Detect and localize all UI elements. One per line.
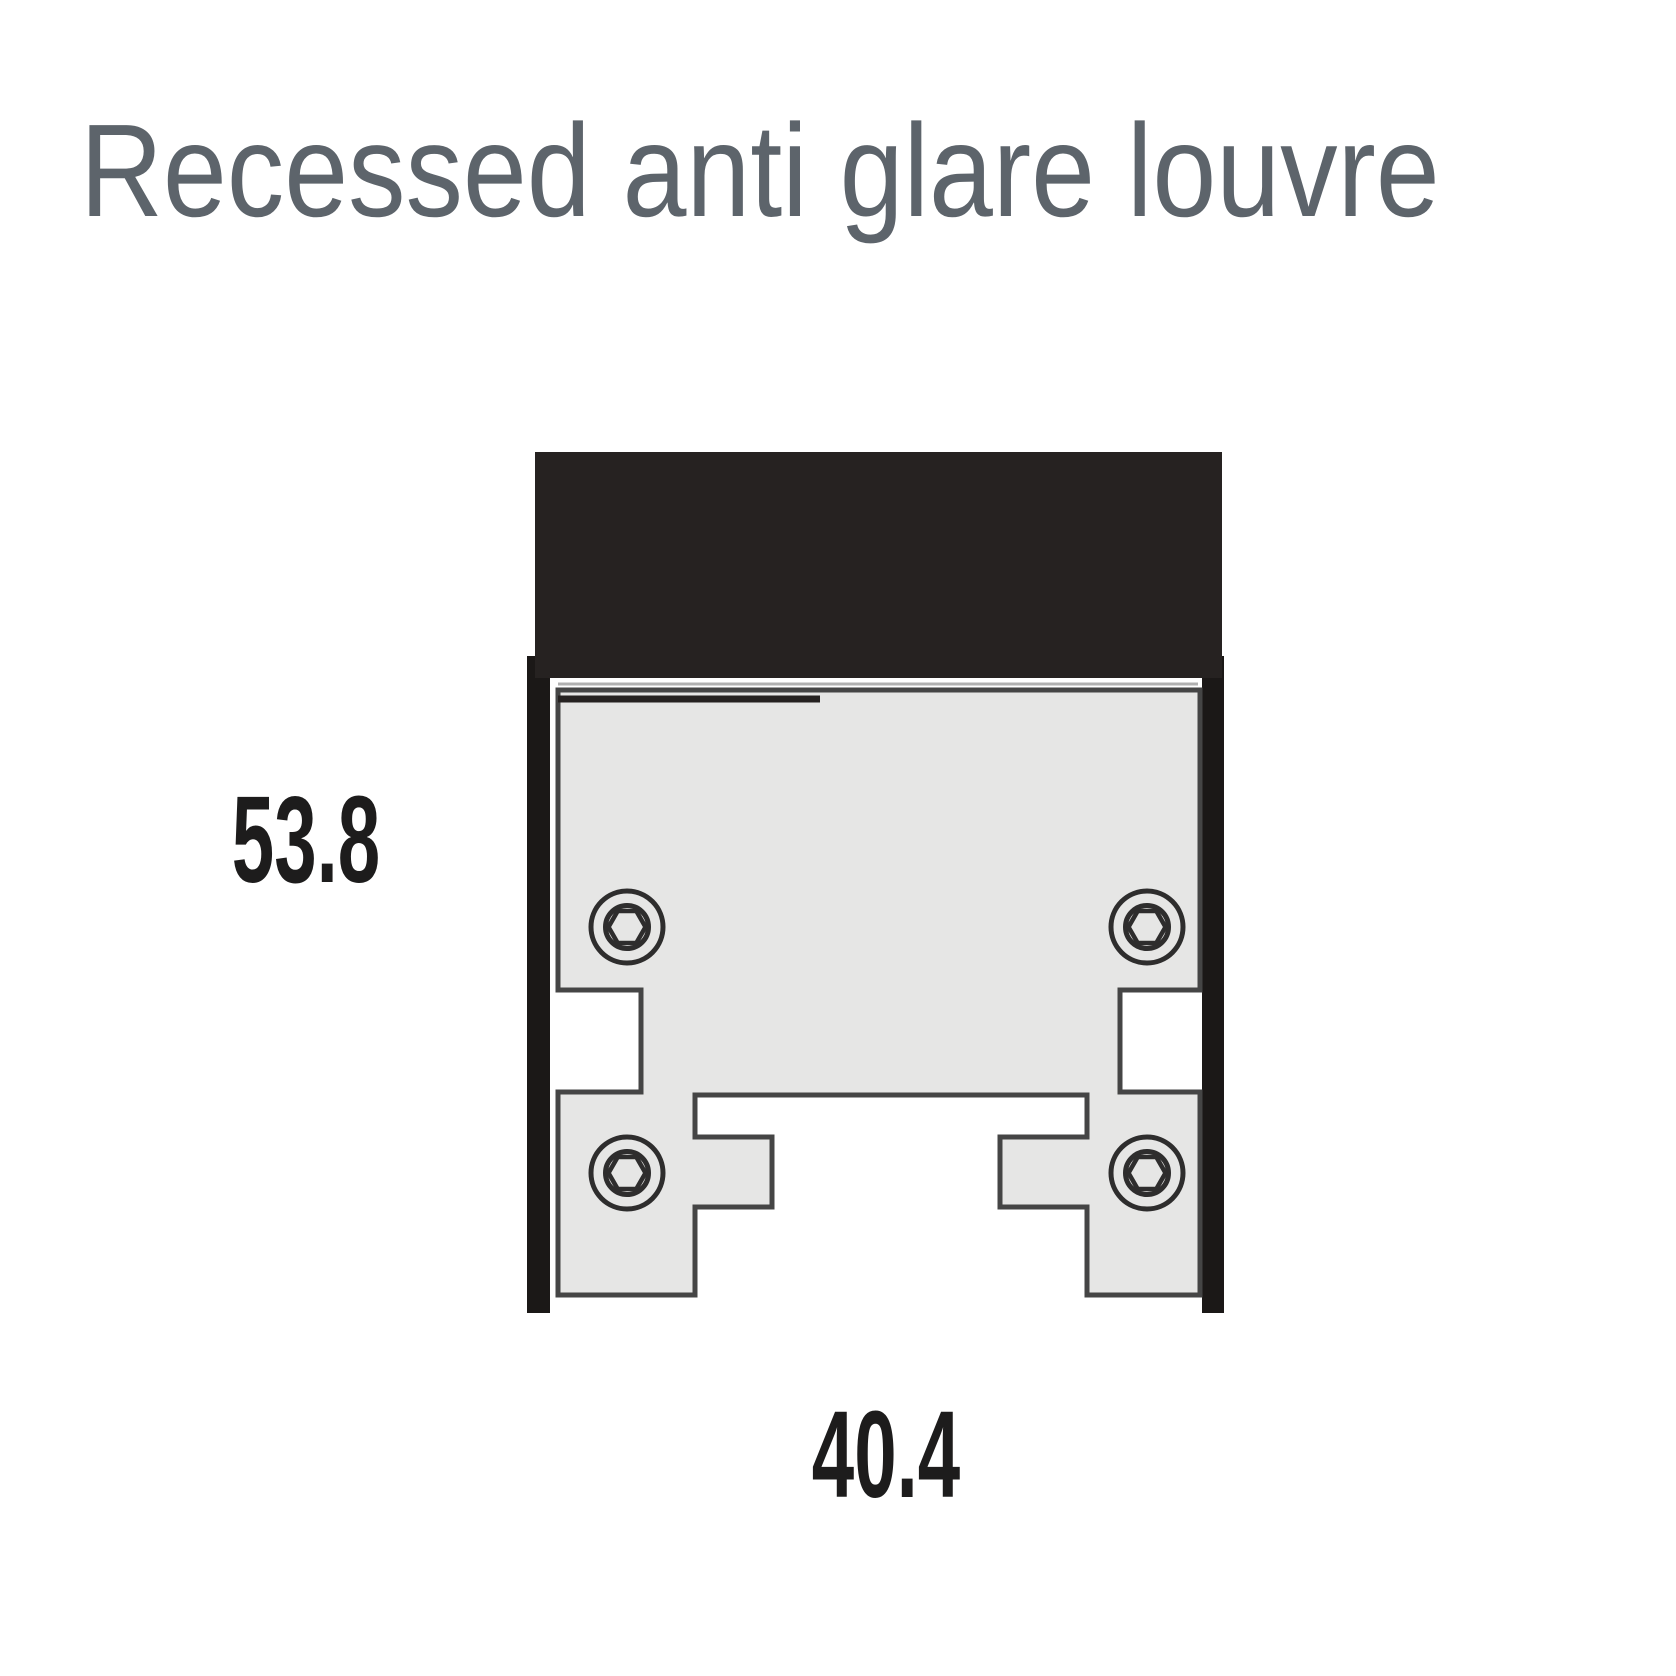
dimension-width-label: 40.4 [793,1394,979,1517]
page: Recessed anti glare louvre [0,0,1676,1676]
top-cap [535,452,1222,678]
louvre-profile-body [558,690,1200,1295]
right-recess-wall [1202,656,1224,1313]
dimension-height-label: 53.8 [213,779,399,902]
left-recess-wall [527,656,550,1313]
